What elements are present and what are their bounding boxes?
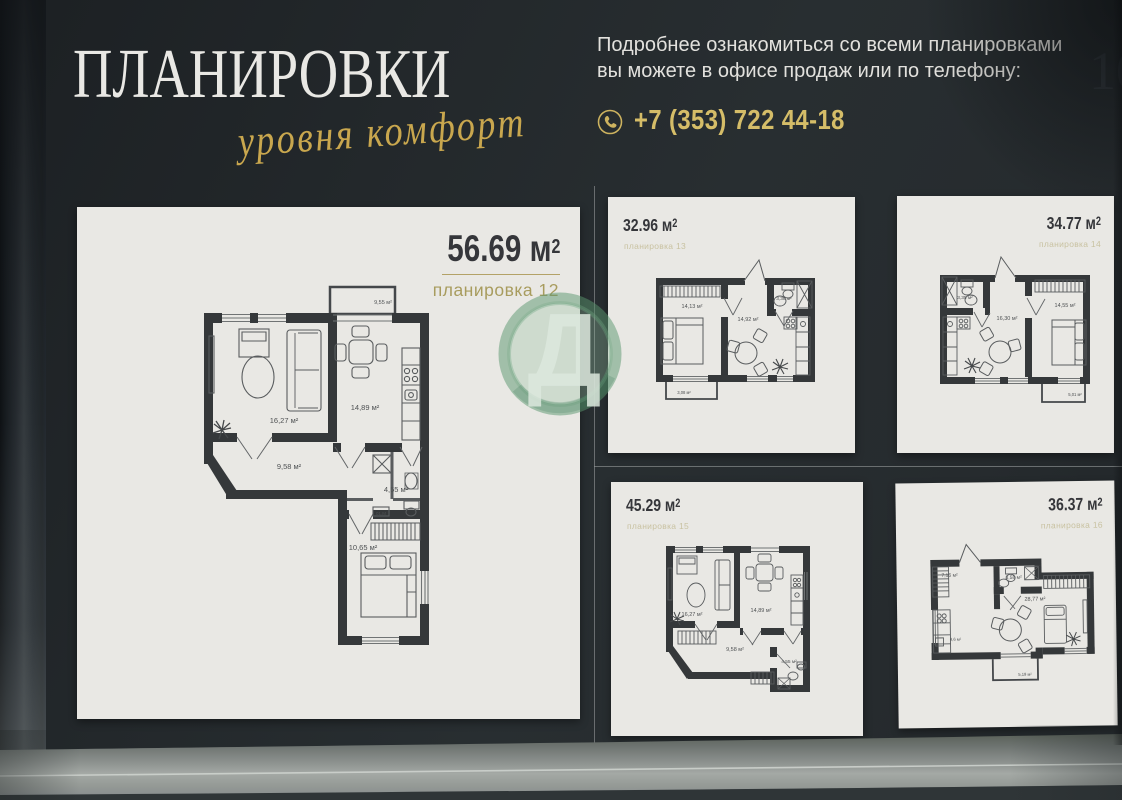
svg-text:4,55 м²: 4,55 м² xyxy=(781,659,797,665)
svg-text:3,35 м²: 3,35 м² xyxy=(957,295,973,301)
svg-text:4,6 м²: 4,6 м² xyxy=(950,637,962,642)
svg-text:4,55 м²: 4,55 м² xyxy=(384,485,409,494)
svg-text:14,13 м²: 14,13 м² xyxy=(682,304,703,310)
svg-text:5,01 м²: 5,01 м² xyxy=(1068,392,1082,397)
svg-text:16,27 м²: 16,27 м² xyxy=(682,612,703,618)
svg-text:Д: Д xyxy=(527,293,601,409)
svg-text:7,16 м²: 7,16 м² xyxy=(941,573,958,579)
svg-text:14,89 м²: 14,89 м² xyxy=(351,403,380,412)
svg-text:9,55 м²: 9,55 м² xyxy=(374,300,392,306)
svg-text:14,55 м²: 14,55 м² xyxy=(1055,303,1076,309)
svg-text:9,58 м²: 9,58 м² xyxy=(277,462,302,471)
svg-text:3,58 м²: 3,58 м² xyxy=(1005,575,1022,581)
svg-text:16,27 м²: 16,27 м² xyxy=(270,416,299,425)
svg-text:9,58 м²: 9,58 м² xyxy=(726,647,744,653)
svg-text:3,08 м²: 3,08 м² xyxy=(677,390,691,395)
svg-text:5,19 м²: 5,19 м² xyxy=(1018,672,1032,677)
svg-text:28,77 м²: 28,77 м² xyxy=(1024,596,1045,602)
svg-text:16,30 м²: 16,30 м² xyxy=(997,316,1018,322)
svg-text:10,65 м²: 10,65 м² xyxy=(349,543,378,552)
svg-text:01.М: 01.М xyxy=(376,511,386,516)
svg-text:3,38 м²: 3,38 м² xyxy=(776,296,792,302)
svg-text:14,92 м²: 14,92 м² xyxy=(738,317,759,323)
svg-text:14,89 м²: 14,89 м² xyxy=(751,608,772,614)
